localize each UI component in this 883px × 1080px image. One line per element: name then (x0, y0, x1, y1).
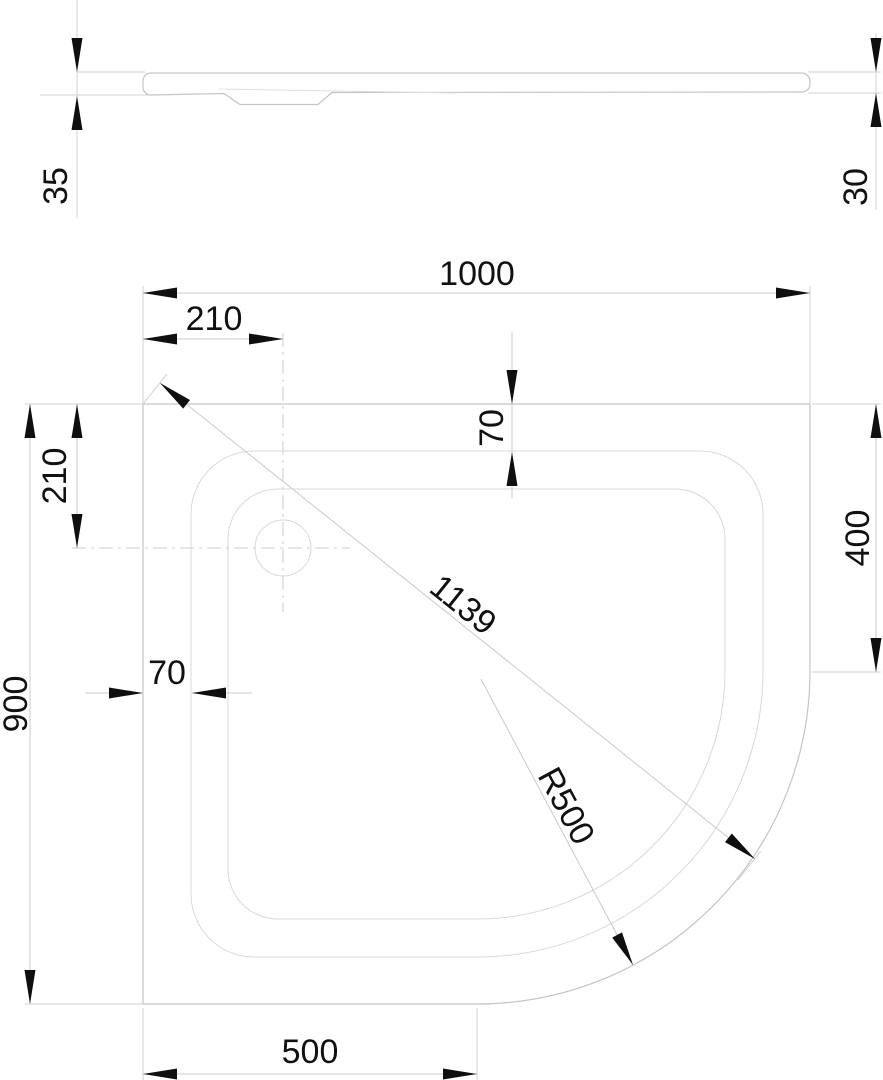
drawing-canvas: 35 30 1000 (0, 0, 883, 1080)
drain (72, 333, 350, 612)
arrow-left-icon (143, 1069, 177, 1080)
dim-label: 900 (0, 676, 35, 733)
dimension-side-right: 30 (808, 33, 882, 210)
dim-label: 1139 (423, 567, 504, 642)
arrow-up-icon (871, 404, 882, 438)
arrow-down-right-icon (725, 834, 755, 860)
arrow-down-icon (25, 970, 36, 1004)
dim-label: 210 (36, 448, 74, 505)
dimension-rim-top-70: 70 (473, 332, 518, 498)
dim-label: 70 (473, 409, 511, 447)
arrow-right-icon (109, 688, 143, 699)
arrow-down-icon (72, 38, 83, 72)
arrow-right-icon (249, 334, 283, 345)
tray-outer-outline (143, 404, 810, 1004)
dimension-radius-r500: R500 (481, 679, 633, 965)
arrow-down-icon (72, 514, 83, 548)
dim-label: R500 (530, 761, 602, 851)
arrow-left-icon (143, 334, 177, 345)
dimension-drain-x-210: 210 (143, 300, 283, 345)
dimension-right-400: 400 (812, 404, 882, 672)
arrow-up-left-icon (160, 383, 190, 409)
dimension-bottom-500: 500 (143, 1008, 477, 1080)
arrow-down-icon (871, 38, 882, 72)
dim-label: 500 (282, 1033, 339, 1071)
dim-label: 210 (186, 300, 243, 338)
dim-label: 35 (37, 167, 75, 205)
dim-label: 400 (839, 510, 877, 567)
dimension-rim-left-70: 70 (85, 654, 252, 699)
tray-rim-outline (191, 451, 763, 957)
tray-profile-outline (143, 73, 810, 105)
arrow-up-icon (25, 404, 36, 438)
tray-floor-outline (228, 489, 725, 919)
arrow-up-icon (871, 93, 882, 127)
dimension-diagonal-1139: 1139 (143, 374, 761, 880)
dimension-side-left: 35 (37, 0, 150, 218)
arrow-up-icon (507, 452, 518, 486)
dimension-width-1000: 1000 (143, 255, 810, 404)
dim-label: 1000 (439, 255, 515, 293)
arrow-up-icon (72, 96, 83, 130)
arrow-left-icon (192, 688, 226, 699)
arrow-up-icon (72, 404, 83, 438)
arrow-right-icon (443, 1069, 477, 1080)
dim-label: 30 (837, 168, 875, 206)
arrow-down-right-icon (612, 932, 633, 965)
arrow-down-icon (507, 370, 518, 404)
side-view: 35 30 (37, 0, 882, 218)
side-view-profile (143, 73, 810, 105)
dimension-drain-y-210: 210 (25, 404, 143, 548)
arrow-right-icon (776, 288, 810, 299)
arrow-left-icon (143, 288, 177, 299)
arrow-down-icon (871, 638, 882, 672)
dim-label: 70 (148, 654, 186, 692)
